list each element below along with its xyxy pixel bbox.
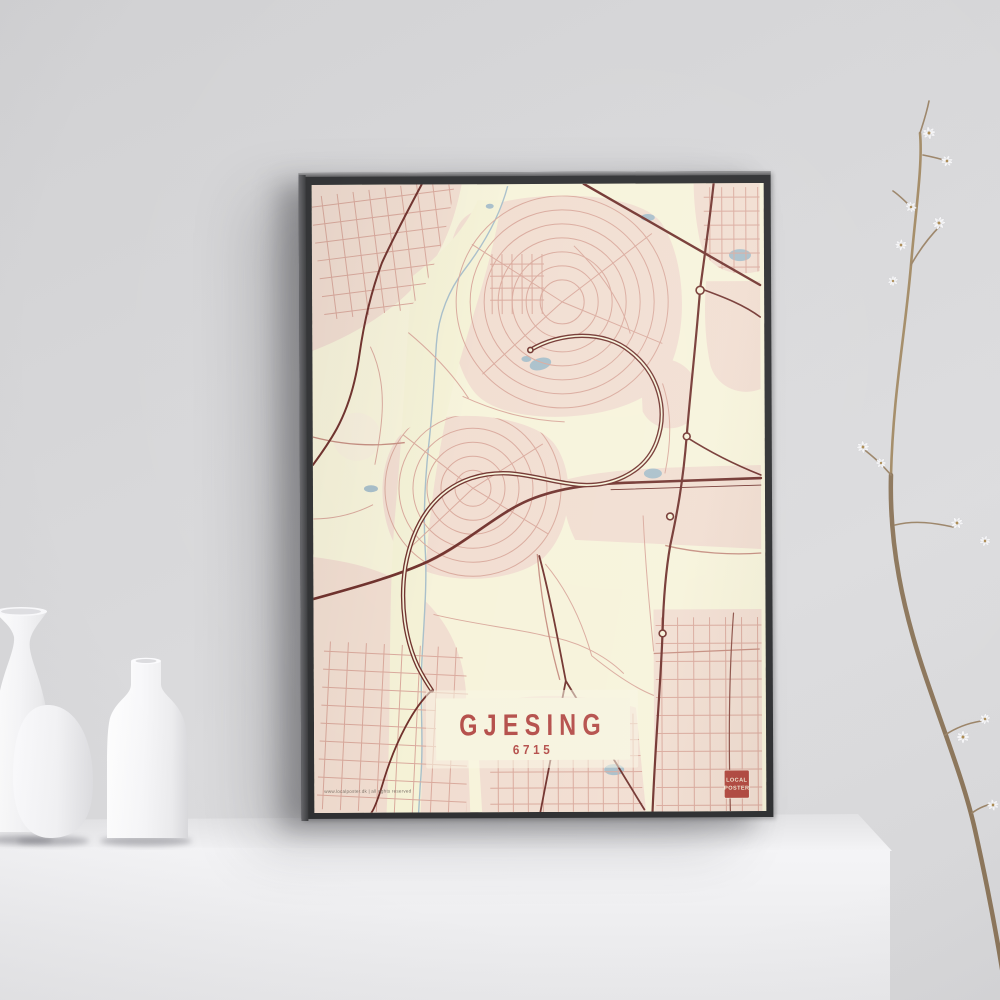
brand-badge: LOCAL POSTER: [724, 770, 750, 798]
room-scene: GJESING 6715 www.localposter.dk | all ri…: [0, 0, 1000, 1000]
branch-stem: [861, 101, 1000, 1000]
vase-group: [0, 600, 200, 850]
brand-badge-box: [724, 770, 749, 798]
brand-badge-line2: POSTER: [724, 786, 749, 792]
map-poster: GJESING 6715 www.localposter.dk | all ri…: [312, 183, 767, 813]
poster-frame: GJESING 6715 www.localposter.dk | all ri…: [299, 171, 774, 819]
poster-postal-code: 6715: [513, 742, 553, 757]
frame-left-bevel: [299, 175, 309, 821]
dried-branch: [845, 95, 1000, 1000]
egg-vase: [13, 705, 93, 838]
poster-title: GJESING: [459, 708, 607, 742]
frame-top-bevel: [299, 171, 771, 177]
branch-blossoms: [855, 125, 1000, 812]
poster-credit: www.localposter.dk | all rights reserved: [324, 789, 411, 794]
brand-badge-line1: LOCAL: [726, 778, 747, 784]
map-art: GJESING 6715 www.localposter.dk | all ri…: [312, 183, 767, 813]
bottle-vase: [107, 658, 188, 838]
pedestal-front-face: [0, 846, 892, 1000]
poster-title-label: GJESING 6715: [426, 690, 638, 769]
